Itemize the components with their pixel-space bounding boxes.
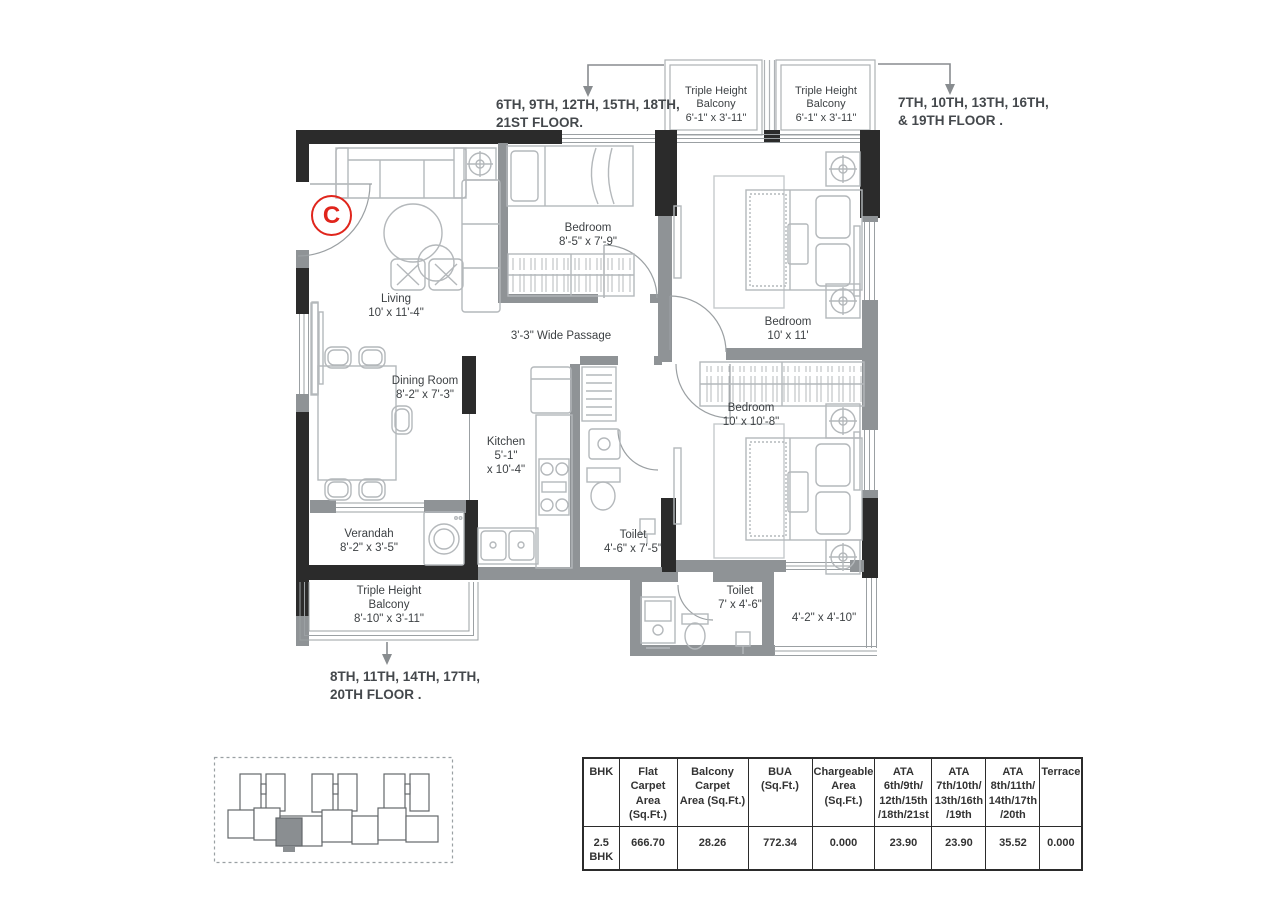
dining-set: [318, 347, 412, 500]
cell-bua: 772.34: [748, 827, 812, 870]
header-flat-carpet: Flat Carpet Area (Sq.Ft.): [619, 758, 677, 827]
room-label-balcony-top-left: Triple Height Balcony 6'-1" x 3'-11": [685, 85, 747, 125]
unit-marker-label: C: [323, 202, 340, 230]
room-label-dining: Dining Room 8'-2" x 7'-3": [392, 374, 458, 402]
key-plan: [215, 758, 453, 863]
room-label-bedroom-right: Bedroom 10' x 11': [765, 315, 812, 343]
room-label-verandah: Verandah 8'-2" x 3'-5": [340, 527, 398, 555]
wardrobe-top: [508, 254, 634, 296]
toilet-mid-door-arc: [618, 430, 658, 470]
header-chargeable: Chargeable Area (Sq.Ft.): [812, 758, 875, 827]
cell-balcony-carpet: 28.26: [677, 827, 748, 870]
cell-ata-2: 23.90: [932, 827, 986, 870]
header-bhk: BHK: [583, 758, 619, 827]
washing-machine: [424, 512, 464, 565]
header-ata-1: ATA 6th/9th/ 12th/15th /18th/21st: [875, 758, 932, 827]
floors-annotation-top-right: 7TH, 10TH, 13TH, 16TH, & 19TH FLOOR .: [898, 94, 1049, 130]
room-label-toilet-mid: Toilet 4'-6" x 7'-5": [604, 528, 662, 556]
table-data-row: 2.5 BHK 666.70 28.26 772.34 0.000 23.90 …: [583, 827, 1082, 870]
room-label-bedroom-bottom: Bedroom 10' x 10'-8": [723, 401, 779, 429]
header-ata-2: ATA 7th/10th/ 13th/16th /19th: [932, 758, 986, 827]
room-label-balcony-top-right: Triple Height Balcony 6'-1" x 3'-11": [795, 85, 857, 125]
table-header-row: BHK Flat Carpet Area (Sq.Ft.) Balcony Ca…: [583, 758, 1082, 827]
sofa: [336, 148, 500, 312]
bed-bottom: [714, 424, 862, 558]
header-bua: BUA (Sq.Ft.): [748, 758, 812, 827]
toilet-mid-fixtures: [582, 367, 655, 544]
room-label-balcony-bottom: Triple Height Balcony 8'-10" x 3'-11": [354, 584, 424, 626]
room-label-kitchen: Kitchen 5'-1" x 10'-4": [487, 435, 525, 477]
wardrobe-bottom: [700, 362, 864, 406]
cell-bhk: 2.5 BHK: [583, 827, 619, 870]
floors-annotation-bottom: 8TH, 11TH, 14TH, 17TH, 20TH FLOOR .: [330, 668, 480, 704]
coffee-table: [384, 204, 454, 281]
armchairs: [391, 259, 463, 290]
cell-chargeable: 0.000: [812, 827, 875, 870]
cell-ata-3: 35.52: [986, 827, 1040, 870]
lamp-bed-right-2: [826, 284, 860, 318]
key-plan-highlighted-unit: [276, 818, 302, 846]
header-balcony-carpet: Balcony Carpet Area (Sq.Ft.): [677, 758, 748, 827]
header-ata-3: ATA 8th/11th/ 14th/17th /20th: [986, 758, 1040, 827]
room-label-deck-dims: 4'-2" x 4'-10": [792, 611, 856, 625]
room-label-toilet-bottom: Toilet 7' x 4'-6": [718, 584, 762, 612]
room-label-passage: 3'-3" Wide Passage: [511, 329, 611, 343]
cell-ata-1: 23.90: [875, 827, 932, 870]
room-label-living: Living 10' x 11'-4": [368, 292, 424, 320]
header-terrace: Terrace: [1040, 758, 1082, 827]
lamp-bed-right-1: [826, 152, 860, 186]
bedroom-right-door-arc: [670, 296, 726, 352]
cell-terrace: 0.000: [1040, 827, 1082, 870]
bed-right: [714, 176, 862, 308]
room-label-bedroom-top: Bedroom 8'-5" x 7'-9": [559, 221, 617, 249]
cell-flat-carpet: 666.70: [619, 827, 677, 870]
fan-living: [464, 148, 496, 180]
floor-plan-page: C 6TH, 9TH, 12TH, 15TH, 18TH, 21ST FLOOR…: [0, 0, 1280, 915]
unit-marker: C: [311, 195, 352, 236]
floors-annotation-top-left: 6TH, 9TH, 12TH, 15TH, 18TH, 21ST FLOOR.: [496, 96, 680, 132]
single-bed: [507, 146, 633, 206]
lamp-bed-bottom-1: [826, 404, 860, 438]
area-statement-table: BHK Flat Carpet Area (Sq.Ft.) Balcony Ca…: [582, 757, 1083, 871]
